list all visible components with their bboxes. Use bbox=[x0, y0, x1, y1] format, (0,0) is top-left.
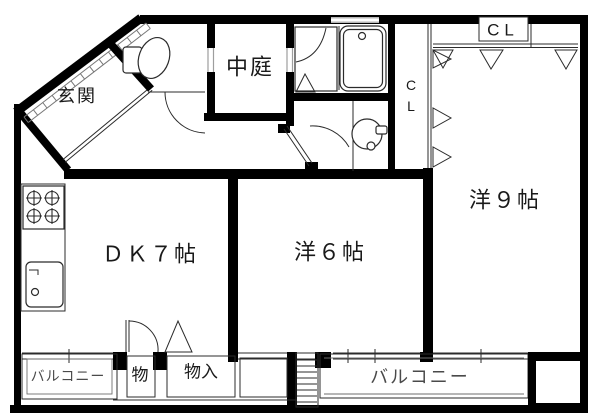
folding-door-triangle bbox=[555, 50, 577, 69]
balcony-partition-hatch bbox=[297, 360, 317, 402]
dk-area: ＤＫ７帖 bbox=[21, 184, 198, 311]
toilet-door-arc bbox=[165, 92, 205, 133]
corner-shaft bbox=[528, 352, 588, 412]
bottom-edge-line bbox=[10, 405, 588, 413]
washroom-area bbox=[278, 101, 387, 172]
wash-basin-drain bbox=[367, 142, 375, 150]
left-wall bbox=[14, 104, 21, 413]
balcony-center-label: バルコニー bbox=[370, 367, 470, 387]
west6-area: 洋６帖 bbox=[294, 240, 366, 265]
shaft-bottom-wall bbox=[528, 403, 588, 412]
bathtub-drain bbox=[359, 33, 366, 40]
toilet-room bbox=[107, 33, 205, 133]
shaft-top-wall bbox=[528, 352, 588, 361]
room-label-west9: 洋９帖 bbox=[469, 188, 541, 213]
balcony-left-label: バルコニー bbox=[31, 368, 106, 384]
bathroom-area bbox=[288, 16, 395, 179]
sill-post bbox=[113, 352, 127, 370]
washroom-door-arc bbox=[310, 126, 349, 147]
folding-door-triangle bbox=[165, 321, 192, 352]
wash-basin-faucet bbox=[376, 126, 387, 134]
balcony-partition bbox=[296, 353, 318, 407]
room-label-west6: 洋６帖 bbox=[294, 240, 366, 265]
folding-door-triangle bbox=[480, 50, 503, 69]
bath-washroom-wall bbox=[288, 93, 395, 101]
hall-south-wall bbox=[64, 169, 433, 179]
closet-side-label-c: C bbox=[406, 77, 416, 93]
kitchen-sink bbox=[26, 262, 63, 307]
floorplan-image: 玄関 中庭 bbox=[0, 0, 600, 420]
stove bbox=[23, 186, 64, 229]
courtyard-area: 中庭 bbox=[204, 16, 294, 126]
bath-east-wall bbox=[388, 16, 395, 179]
storage-label: 物 bbox=[132, 366, 149, 385]
dk-west6-wall bbox=[228, 172, 238, 362]
entrance-band-inner bbox=[28, 29, 150, 123]
closet-side-track bbox=[428, 24, 431, 168]
storage-door-leaf bbox=[126, 320, 129, 352]
west6-west9-wall bbox=[423, 168, 433, 362]
room-label-genkan: 玄関 bbox=[57, 86, 97, 106]
folding-door-triangle bbox=[433, 108, 451, 128]
closet-top-label: CL bbox=[487, 21, 519, 40]
service-box bbox=[240, 358, 287, 397]
bottom-strip: 物 物入 バルコニー バルコニー bbox=[22, 320, 588, 412]
courtyard-bottom-wall bbox=[204, 113, 294, 121]
folding-door-triangle bbox=[433, 147, 451, 167]
room-label-dk: ＤＫ７帖 bbox=[102, 242, 198, 267]
storage-in-label: 物入 bbox=[184, 363, 218, 382]
sink-drain bbox=[32, 289, 39, 296]
room-label-courtyard: 中庭 bbox=[226, 55, 274, 80]
closet-side-label-l: L bbox=[407, 98, 415, 114]
storage-door-arc bbox=[129, 321, 158, 352]
